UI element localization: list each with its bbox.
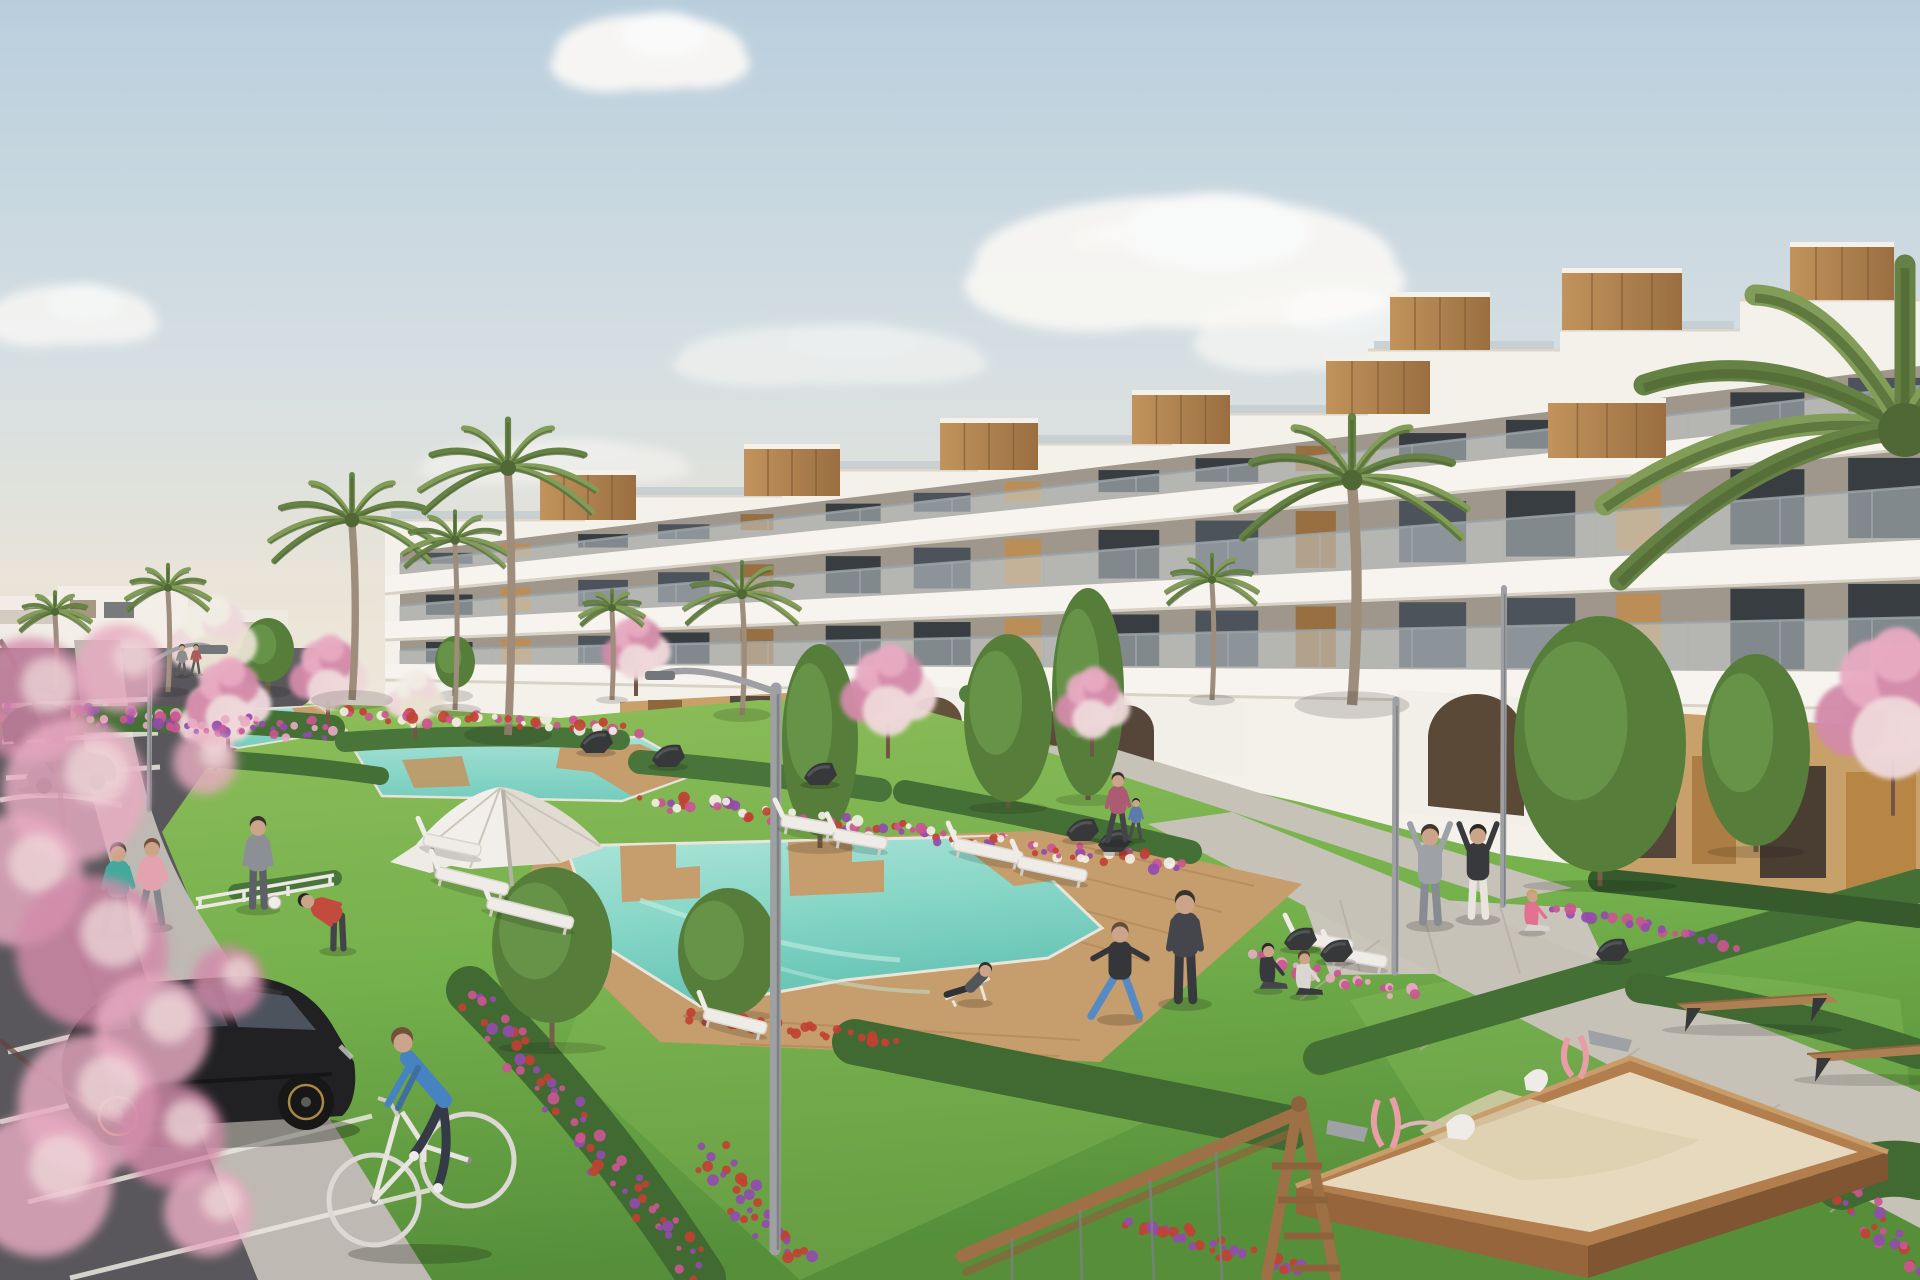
rendering-canvas: Architectural rendering of a modern whit… — [0, 0, 1920, 1280]
warm-tint-overlay — [0, 0, 1920, 1280]
scene-svg — [0, 0, 1920, 1280]
